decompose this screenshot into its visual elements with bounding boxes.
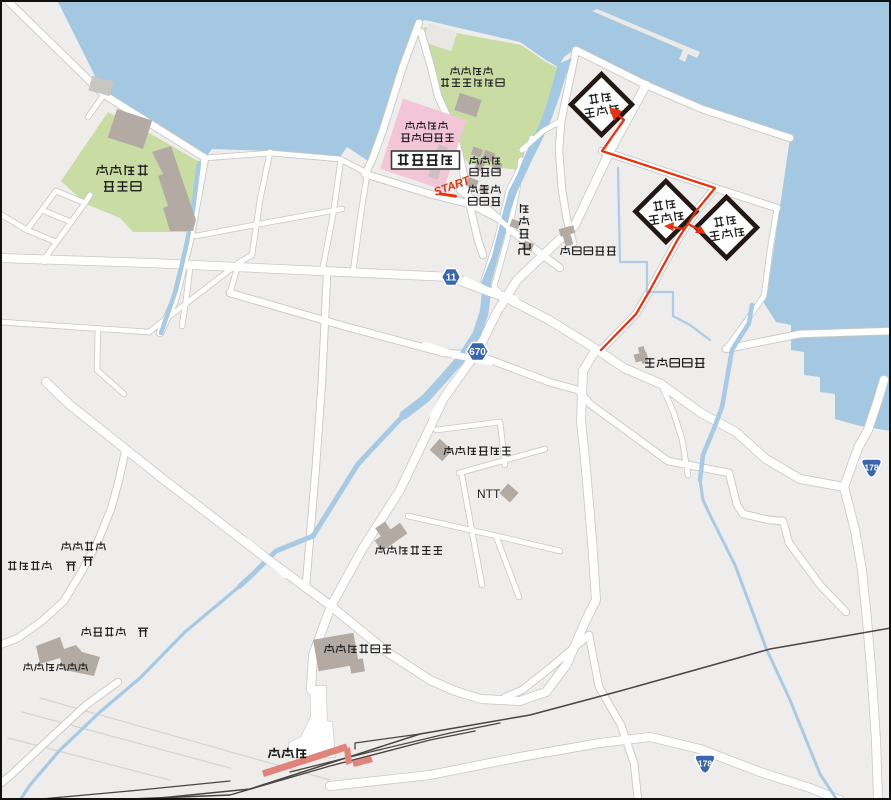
svg-text:178: 178 [864, 463, 879, 473]
svg-text:11: 11 [446, 272, 457, 283]
svg-text:178: 178 [698, 759, 713, 769]
svg-text:670: 670 [469, 347, 486, 358]
svg-text:NTT: NTT [477, 487, 501, 501]
